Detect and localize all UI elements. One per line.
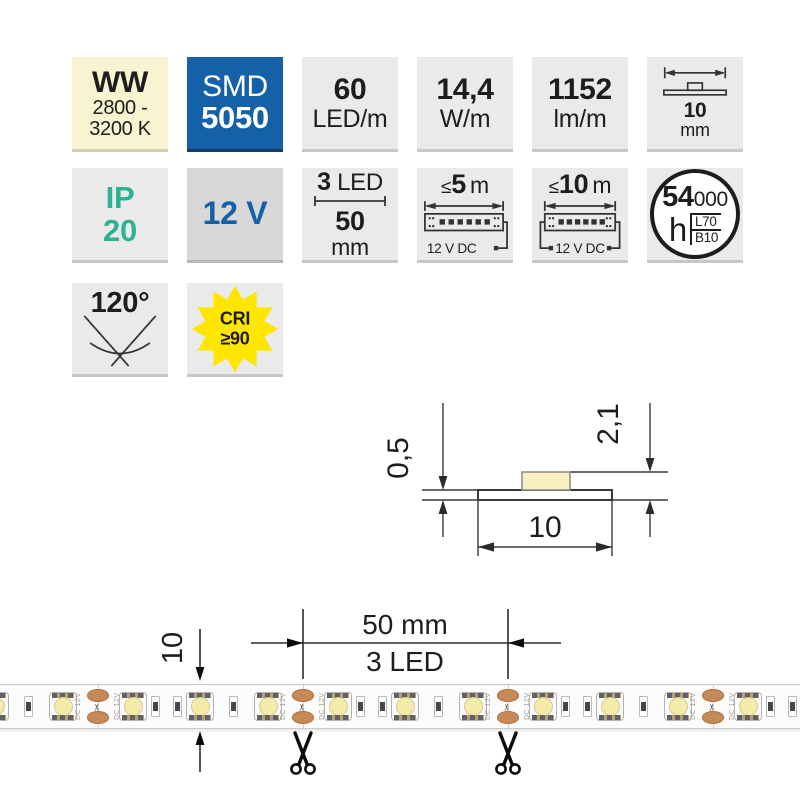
badge-power: 14,4 W/m: [417, 57, 513, 152]
lifetime-unit: h: [669, 213, 687, 246]
led-density-value: 60: [334, 74, 367, 105]
led-chip-profile: [522, 472, 570, 490]
badge-chip-type: SMD 5050: [187, 57, 283, 152]
dual-feed-strip-icon: 12 V DC: [536, 201, 624, 258]
strip-width-icon: [662, 67, 728, 97]
badge-ip-rating: IP 20: [72, 168, 168, 263]
cut-led-count: 3 LED: [317, 169, 383, 196]
badge-max-run-single-feed: ≤5m 12 V DC: [417, 168, 513, 263]
dim-strip-width: 10: [157, 632, 189, 664]
single-feed-supply-label: 12 V DC: [427, 240, 477, 255]
badge-beam-angle: 120°: [72, 283, 168, 377]
cri-star-icon: CRI ≥90: [190, 284, 280, 374]
flux-value: 1152: [548, 74, 612, 105]
failure-rate: B10: [692, 231, 721, 245]
cut-length-unit: mm: [331, 236, 369, 260]
color-temp-range-1: 2800 -: [93, 98, 148, 119]
cri-value: ≥90: [220, 328, 249, 348]
dim-module-leds: 3 LED: [366, 646, 444, 677]
dual-feed-supply-label: 12 V DC: [555, 240, 605, 255]
badge-strip-width: 10 mm: [647, 57, 743, 152]
voltage-value: 12 V: [203, 197, 268, 230]
led-strip-datasheet: WW 2800 - 3200 K SMD 5050 60 LED/m 14,4 …: [0, 0, 800, 800]
pcb-profile: [478, 490, 612, 500]
lifetime-hours: 54000: [662, 183, 728, 212]
single-feed-strip-icon: 12 V DC: [421, 201, 509, 258]
strip-width-value: 10: [684, 100, 707, 121]
beam-angle-value: 120°: [72, 288, 168, 318]
power-unit: W/m: [440, 106, 490, 132]
dim-module-length: 50 mm: [362, 609, 448, 640]
badge-led-density: 60 LED/m: [302, 57, 398, 152]
color-temp-range-2: 3200 K: [89, 119, 151, 140]
badge-color-temp: WW 2800 - 3200 K: [72, 57, 168, 152]
dim-pcb-thickness: 0,5: [382, 437, 415, 479]
ip-code: IP: [106, 181, 135, 214]
power-value: 14,4: [436, 74, 493, 105]
dim-overall-height: 2,1: [592, 403, 625, 445]
strip-width-unit: mm: [680, 121, 709, 139]
cross-section-drawing: 0,5 2,1 10: [380, 385, 690, 570]
scissors-icon: [291, 733, 314, 774]
badge-lifetime: 54000 h L70 B10: [647, 168, 743, 263]
max-run-dual-label: ≤10m: [549, 170, 611, 198]
badge-max-run-dual-feed: ≤10m 12 V DC: [532, 168, 628, 263]
badge-cri: CRI ≥90: [187, 283, 283, 377]
chip-type: SMD: [202, 71, 268, 102]
badge-cut-module: 3 LED 50 mm: [302, 168, 398, 263]
flux-unit: lm/m: [554, 106, 607, 132]
ip-value: 20: [103, 214, 137, 247]
strip-dimensions: 50 mm 3 LED 10: [0, 600, 800, 800]
badge-luminous-flux: 1152 lm/m: [532, 57, 628, 152]
cut-length-value: 50: [335, 207, 364, 235]
dim-width: 10: [528, 511, 561, 544]
led-density-unit: LED/m: [313, 106, 388, 132]
lifetime-circle: 54000 h L70 B10: [650, 169, 740, 259]
scissors-icon: [496, 733, 519, 774]
beam-angle-icon: [78, 314, 162, 368]
max-run-single-label: ≤5m: [441, 170, 489, 198]
lumen-maintenance: L70: [692, 213, 721, 231]
badge-voltage: 12 V: [187, 168, 283, 263]
cri-label: CRI: [220, 308, 250, 328]
chip-model: 5050: [201, 102, 269, 134]
color-temp-code: WW: [92, 67, 148, 98]
